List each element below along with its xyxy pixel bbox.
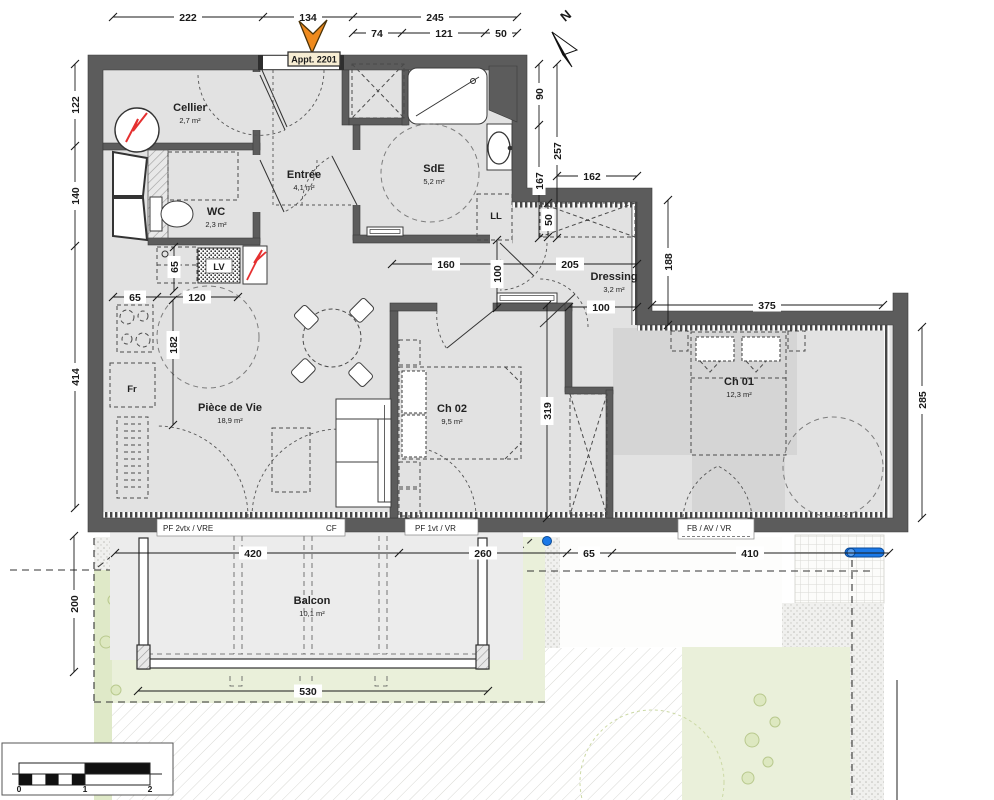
dim-375: 375 [648, 299, 887, 313]
svg-text:188: 188 [663, 253, 675, 271]
label-ch02: Ch 02 9,5 m² [437, 403, 467, 426]
svg-text:2,7 m²: 2,7 m² [179, 116, 201, 125]
svg-text:200: 200 [69, 595, 81, 613]
svg-text:167: 167 [534, 172, 546, 190]
svg-text:100: 100 [592, 302, 610, 314]
svg-text:120: 120 [188, 292, 206, 304]
scale-0: 0 [17, 784, 22, 794]
svg-text:65: 65 [169, 261, 181, 273]
svg-text:90: 90 [534, 88, 546, 100]
svg-text:245: 245 [426, 12, 444, 24]
kitchen-tall-unit-red [243, 246, 267, 284]
svg-text:Cellier: Cellier [173, 102, 207, 114]
unit-label: Appt. 2201 [291, 55, 337, 65]
svg-text:530: 530 [299, 686, 317, 698]
svg-text:414: 414 [70, 368, 82, 386]
floorplan-page: 222 134 245 74 121 50 122 140 414 200 90… [0, 0, 994, 800]
dishwasher-label: LV [213, 262, 225, 273]
scale-2: 2 [148, 784, 153, 794]
svg-text:182: 182 [168, 336, 180, 354]
dim-162: 162 [553, 170, 641, 184]
fridge-label: Fr [127, 384, 137, 395]
svg-text:319: 319 [542, 402, 554, 420]
dim-188: 188 [662, 196, 676, 329]
svg-text:50: 50 [495, 28, 507, 40]
electric-panel-icon [115, 108, 159, 152]
svg-text:134: 134 [299, 12, 317, 24]
scale-bar: 0 1 2 [2, 743, 173, 795]
svg-text:PF 2vtx / VRE: PF 2vtx / VRE [163, 524, 213, 533]
svg-text:9,5 m²: 9,5 m² [441, 417, 463, 426]
window-label-ch01: FB / AV / VR [678, 519, 754, 539]
svg-text:2,3 m²: 2,3 m² [205, 220, 227, 229]
washer-label: LL [490, 211, 502, 222]
window-label-living: PF 2vtx / VRE CF [157, 519, 345, 536]
svg-text:Balcon: Balcon [294, 595, 331, 607]
label-wc: WC 2,3 m² [205, 206, 227, 229]
svg-text:Entrée: Entrée [287, 169, 321, 181]
svg-text:Pièce de Vie: Pièce de Vie [198, 402, 262, 414]
svg-text:10,1 m²: 10,1 m² [299, 609, 325, 618]
label-ch01: Ch 01 12,3 m² [724, 376, 754, 399]
drain-dot [543, 537, 552, 546]
north-arrow: N [552, 7, 577, 67]
scale-1: 1 [83, 784, 88, 794]
svg-text:Ch 01: Ch 01 [724, 376, 754, 388]
label-sde: SdE 5,2 m² [423, 163, 445, 186]
dim-285: 285 [916, 323, 930, 522]
svg-text:CF: CF [326, 524, 337, 533]
svg-text:65: 65 [583, 548, 595, 560]
svg-text:121: 121 [435, 28, 453, 40]
entrance-arrow-icon [299, 20, 327, 53]
svg-text:5,2 m²: 5,2 m² [423, 177, 445, 186]
svg-text:4,1 m²: 4,1 m² [293, 183, 315, 192]
svg-text:12,3 m²: 12,3 m² [726, 390, 752, 399]
svg-text:205: 205 [561, 259, 579, 271]
floorplan-drawing: 222 134 245 74 121 50 122 140 414 200 90… [0, 0, 994, 800]
svg-text:257: 257 [552, 142, 564, 160]
svg-text:260: 260 [474, 548, 492, 560]
svg-text:PF 1vt / VR: PF 1vt / VR [415, 524, 456, 533]
washbasin-icon [487, 124, 512, 170]
svg-text:SdE: SdE [423, 163, 444, 175]
svg-text:Dressing: Dressing [590, 271, 637, 283]
entrance-marker: Appt. 2201 [288, 20, 340, 66]
svg-text:50: 50 [543, 214, 555, 226]
svg-text:FB / AV / VR: FB / AV / VR [687, 524, 732, 533]
hall-dresser [497, 293, 557, 303]
svg-text:162: 162 [583, 171, 601, 183]
svg-text:375: 375 [758, 300, 776, 312]
svg-text:18,9 m²: 18,9 m² [217, 416, 243, 425]
north-label: N [557, 7, 574, 25]
svg-text:160: 160 [437, 259, 455, 271]
window-label-ch02: PF 1vt / VR [405, 519, 478, 535]
svg-text:74: 74 [371, 28, 383, 40]
gutter-pipe [845, 548, 884, 557]
svg-text:410: 410 [741, 548, 759, 560]
svg-text:3,2 m²: 3,2 m² [603, 285, 625, 294]
svg-text:100: 100 [492, 265, 504, 283]
svg-text:140: 140 [70, 187, 82, 205]
svg-text:122: 122 [70, 96, 82, 114]
dim-left-balcony: 200 [68, 532, 82, 676]
shower-icon [408, 68, 487, 124]
svg-text:285: 285 [917, 391, 929, 409]
svg-text:65: 65 [129, 292, 141, 304]
dim-top-2: 74 121 50 [349, 27, 521, 41]
svg-text:WC: WC [207, 206, 225, 218]
svg-text:Ch 02: Ch 02 [437, 403, 467, 415]
dim-left: 122 140 414 [69, 60, 83, 512]
dim-top-1: 222 134 245 [109, 11, 521, 25]
north-arrow-icon [552, 32, 577, 55]
sofa [336, 399, 391, 507]
svg-text:222: 222 [179, 12, 197, 24]
cellier-cupboard [113, 152, 147, 196]
cellier-cupboard-2 [113, 198, 147, 240]
svg-text:420: 420 [244, 548, 262, 560]
sde-bench [367, 227, 403, 236]
